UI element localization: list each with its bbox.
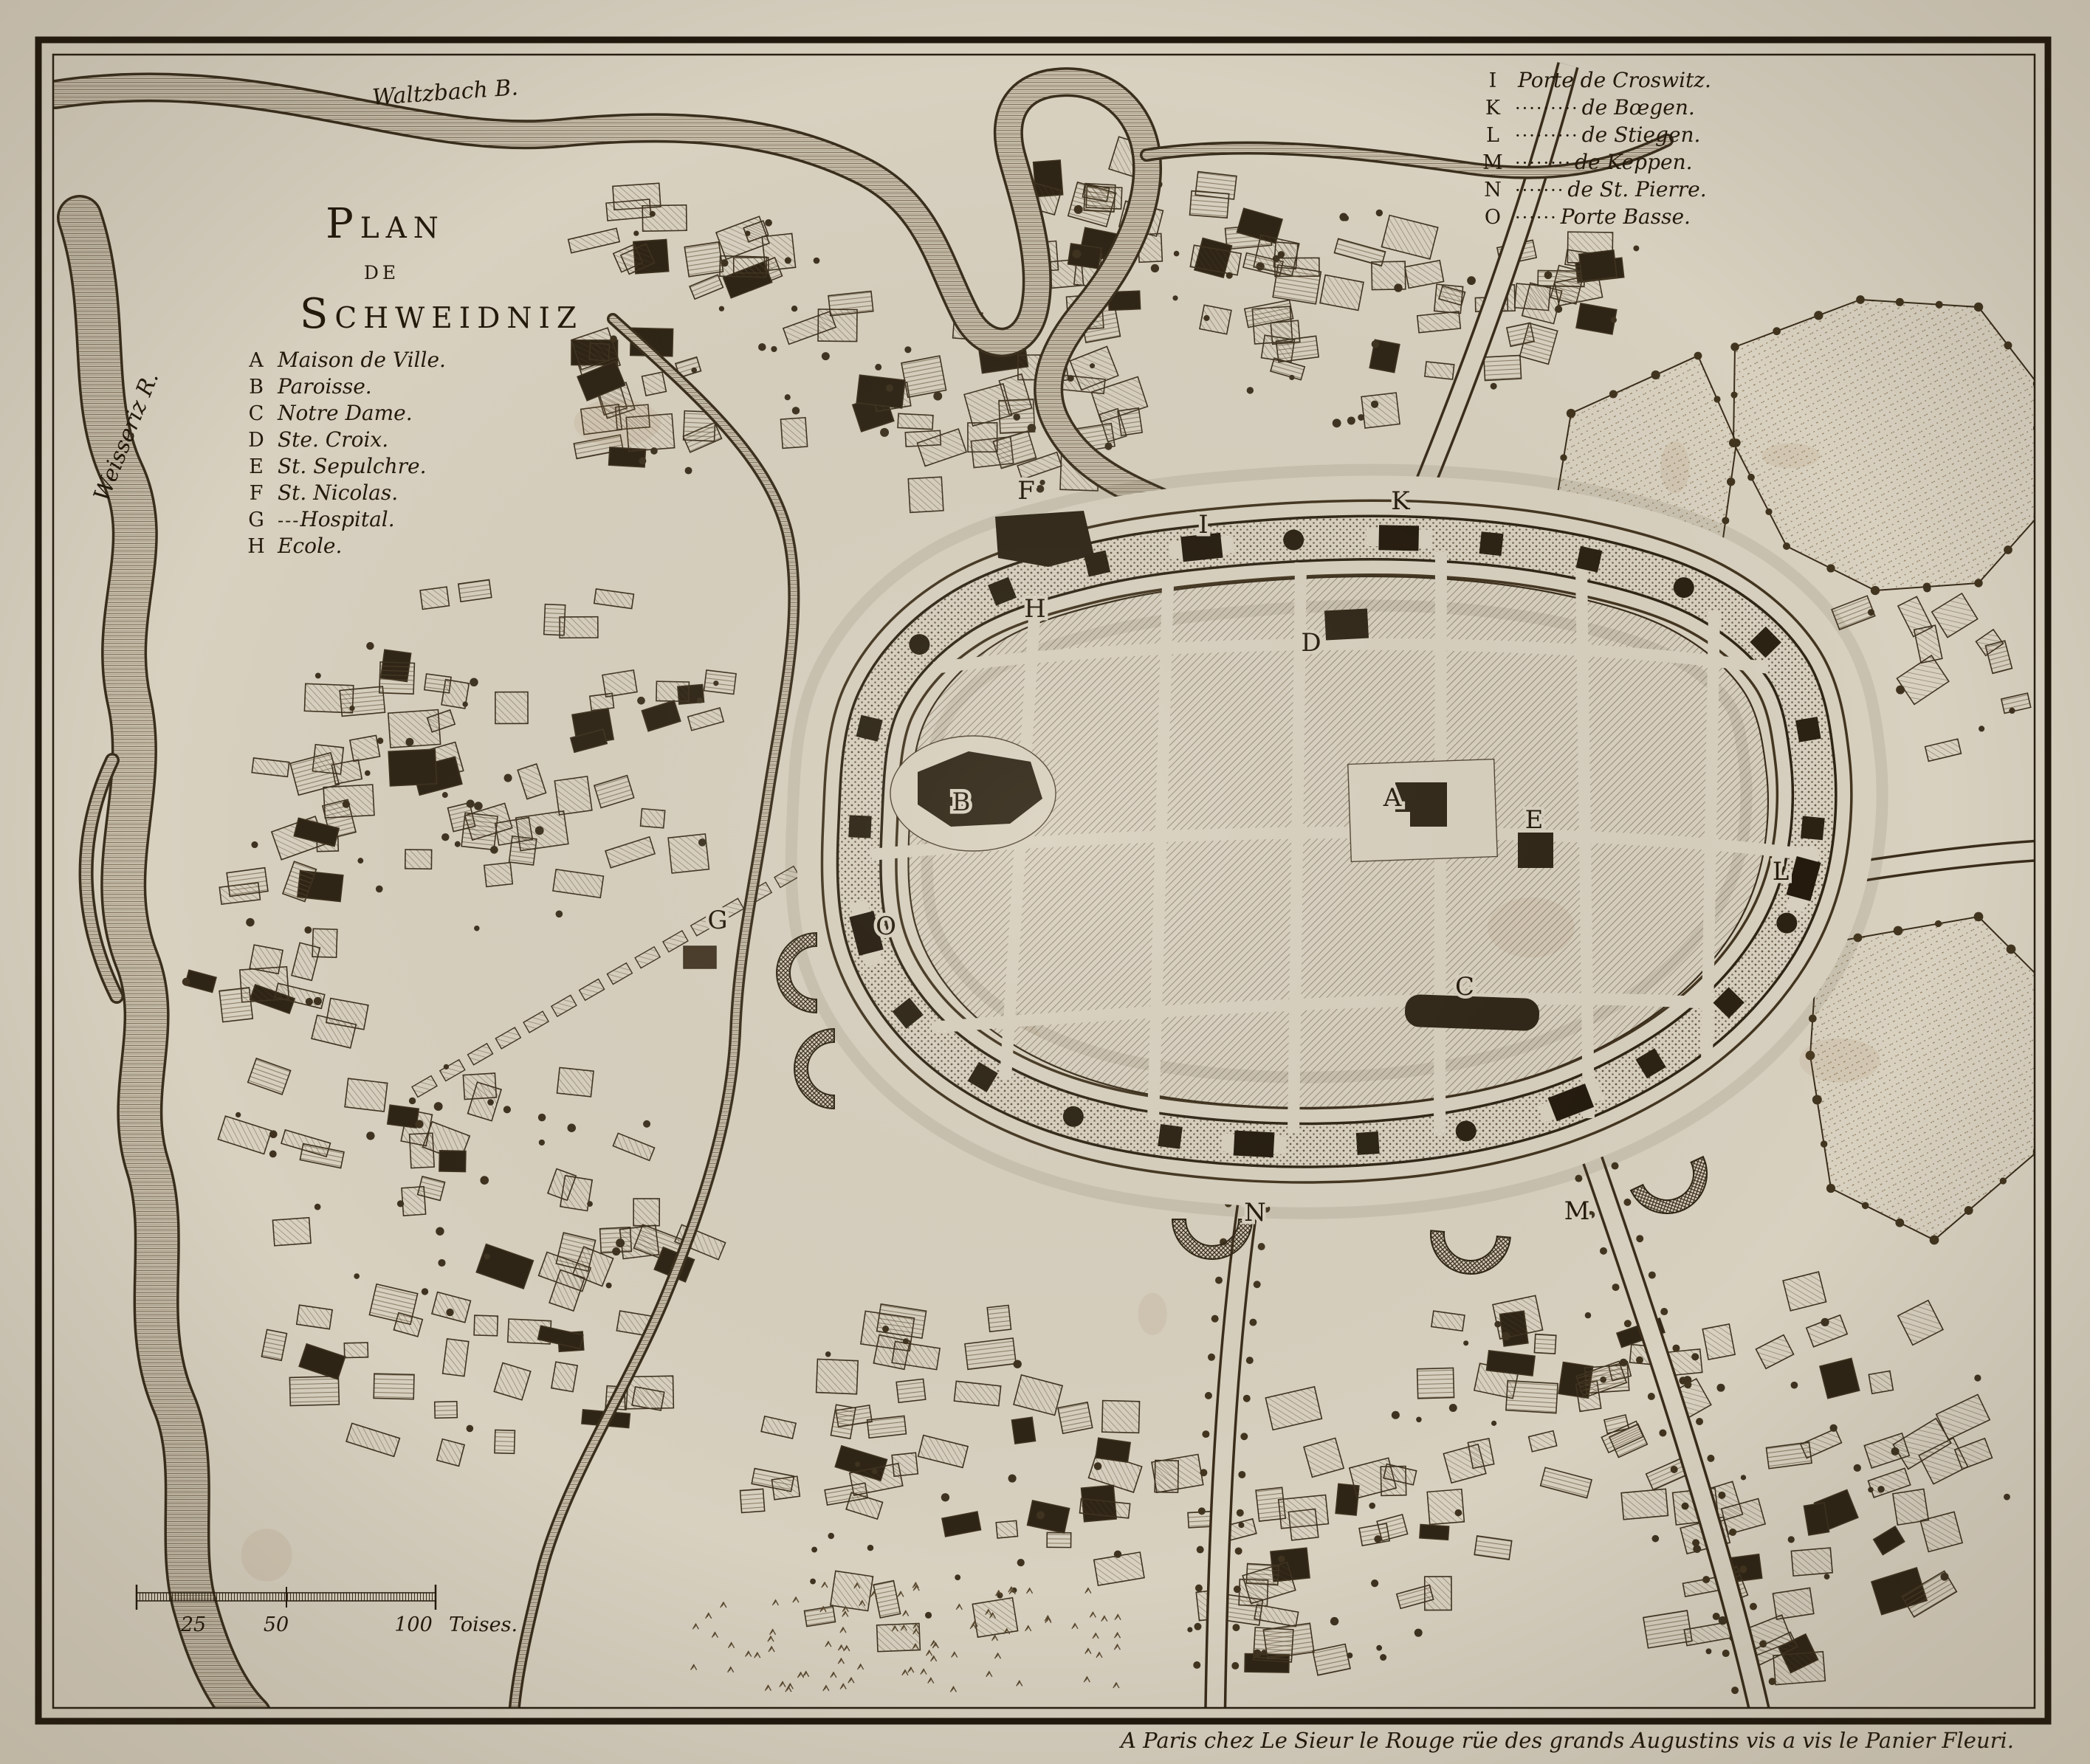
tree-icon: [721, 259, 728, 266]
tree-icon: [1975, 579, 1981, 586]
tree-icon: [785, 394, 791, 400]
suburb-block: [1011, 1417, 1035, 1444]
tree-icon: [1896, 298, 1904, 306]
suburb-block: [1621, 1489, 1668, 1519]
suburb-block: [1506, 1381, 1558, 1413]
tree-icon: [810, 1579, 816, 1585]
tree-icon: [1254, 1281, 1261, 1288]
tree-icon: [867, 1545, 874, 1551]
tree-icon: [1376, 1645, 1382, 1651]
tree-icon: [697, 697, 703, 703]
tree-icon: [1151, 264, 1159, 272]
tree-icon: [503, 1106, 511, 1113]
tree-icon: [1278, 251, 1285, 258]
tree-icon: [1854, 1464, 1861, 1472]
suburb-block: [557, 1067, 594, 1096]
tree-icon: [376, 886, 383, 893]
tree-icon: [434, 1102, 443, 1111]
tree-icon: [1671, 1466, 1678, 1473]
tree-icon: [1964, 1206, 1973, 1215]
st-sepulchre-building: [1518, 833, 1553, 868]
tree-icon: [1333, 418, 1341, 427]
tree-icon: [538, 1114, 546, 1121]
suburb-block: [1893, 1489, 1928, 1525]
suburb-block: [996, 1520, 1017, 1538]
tree-icon: [2000, 1177, 2007, 1184]
tree-icon: [306, 998, 313, 1005]
tree-icon: [1237, 1509, 1244, 1517]
suburb-block: [908, 477, 943, 512]
wall-tower: [1776, 913, 1797, 934]
suburb-block: [1474, 1536, 1512, 1560]
tree-icon: [1660, 1308, 1668, 1315]
wall-tower: [1063, 1106, 1084, 1127]
tree-icon: [872, 1469, 878, 1475]
tree-icon: [903, 1338, 909, 1344]
tree-icon: [1636, 1235, 1643, 1242]
tree-icon: [1008, 1475, 1017, 1483]
tree-icon: [1258, 1243, 1265, 1250]
tree-icon: [771, 346, 777, 352]
legend-label: Notre Dame.: [277, 401, 413, 425]
tree-icon: [1609, 390, 1618, 399]
tree-icon: [343, 800, 350, 807]
suburb-block: [304, 683, 353, 712]
street: [1581, 567, 1589, 1118]
suburb-block: [1507, 323, 1534, 346]
tree-icon: [1013, 1360, 1021, 1368]
suburb-block: [1820, 1358, 1860, 1398]
tree-icon: [366, 642, 374, 650]
suburb-block: [1361, 393, 1400, 428]
tree-icon: [1692, 1539, 1699, 1546]
tree-icon: [633, 231, 639, 236]
tree-icon: [1718, 1492, 1725, 1499]
legend-label: ---Hospital.: [278, 507, 395, 531]
legend-label: Paroisse.: [277, 374, 372, 399]
bastion: [1479, 531, 1504, 556]
tree-icon: [474, 802, 483, 810]
wall-tower: [909, 634, 929, 655]
tree-icon: [1544, 271, 1553, 279]
tree-icon: [1707, 1455, 1714, 1462]
suburb-block: [560, 617, 598, 638]
tree-icon: [1074, 205, 1083, 214]
tree-icon: [1394, 283, 1402, 292]
tree-icon: [315, 672, 321, 678]
foxing-spot: [1799, 1038, 1880, 1083]
tree-icon: [405, 738, 413, 746]
tree-icon: [490, 846, 498, 854]
tree-icon: [1783, 542, 1790, 550]
suburb-block: [1425, 362, 1454, 379]
tree-icon: [1567, 409, 1575, 418]
suburb-block: [901, 356, 946, 397]
suburb-block: [484, 863, 512, 887]
tree-icon: [1187, 1627, 1192, 1632]
tree-icon: [785, 257, 791, 263]
tree-icon: [1935, 920, 1942, 927]
suburb-block: [474, 1315, 498, 1336]
tree-icon: [1857, 296, 1864, 303]
tree-icon: [1691, 1353, 1699, 1360]
tree-icon: [1773, 327, 1781, 335]
tree-icon: [765, 219, 772, 227]
tree-icon: [1730, 391, 1737, 398]
tree-icon: [875, 364, 881, 371]
suburb-block: [443, 1339, 469, 1377]
city-marker-I: I: [1198, 510, 1208, 540]
tree-icon: [1371, 401, 1378, 408]
legend-label: ·········de Stiegen.: [1515, 123, 1700, 147]
suburb-block: [458, 579, 492, 602]
suburb-block: [831, 1571, 873, 1610]
tree-icon: [955, 1574, 960, 1580]
suburb-block: [1804, 1503, 1829, 1535]
legend-key: B: [249, 376, 264, 399]
tree-icon: [1791, 1382, 1798, 1389]
tree-icon: [811, 1547, 817, 1553]
tree-icon: [567, 1123, 576, 1132]
tree-icon: [1702, 1576, 1710, 1583]
tree-icon: [1238, 1522, 1244, 1528]
tree-icon: [1347, 1653, 1352, 1658]
suburb-block: [1427, 1489, 1464, 1525]
tree-icon: [1094, 1462, 1102, 1470]
tree-icon: [1931, 1236, 1938, 1244]
suburb-block: [424, 674, 451, 693]
tree-icon: [1246, 1357, 1254, 1364]
tree-icon: [1343, 215, 1349, 221]
bastion: [1576, 546, 1603, 573]
suburb-block: [1288, 1509, 1318, 1540]
tree-icon: [1633, 245, 1639, 251]
suburb-block: [954, 1381, 1000, 1405]
suburb-block: [905, 430, 941, 447]
suburb-block: [345, 1078, 388, 1112]
tree-icon: [1243, 1395, 1251, 1402]
tree-icon: [791, 306, 797, 311]
tree-icon: [1202, 1430, 1209, 1438]
legend-key: D: [248, 429, 264, 452]
ste-croix-building: [1324, 609, 1369, 641]
tree-icon: [1975, 913, 1983, 921]
suburb-block: [1047, 1532, 1071, 1547]
publisher-imprint: A Paris chez Le Sieur le Rouge rüe des g…: [1118, 1728, 2014, 1753]
foxing-spot: [1761, 443, 1820, 468]
tree-icon: [436, 1227, 444, 1236]
tree-icon: [1347, 416, 1355, 424]
legend-key: E: [249, 455, 264, 478]
tree-icon: [1215, 1277, 1223, 1284]
tree-icon: [904, 346, 911, 353]
tree-icon: [616, 1238, 625, 1247]
suburb-block: [1084, 184, 1116, 213]
tree-icon: [1114, 1551, 1121, 1558]
tree-icon: [1722, 517, 1729, 524]
tree-icon: [1894, 926, 1903, 936]
suburb-block: [410, 1133, 435, 1168]
tree-icon: [1830, 1424, 1838, 1432]
tree-icon: [1232, 1624, 1240, 1631]
tree-icon: [354, 1273, 360, 1279]
tree-icon: [1358, 414, 1364, 421]
tree-icon: [1247, 387, 1254, 393]
map-title-line2: de: [364, 255, 399, 286]
suburb-block: [227, 868, 268, 897]
tree-icon: [1197, 1546, 1204, 1554]
tree-icon: [455, 841, 461, 847]
legend-label: ······Porte Basse.: [1515, 204, 1691, 229]
tree-icon: [1104, 443, 1112, 450]
tree-icon: [182, 978, 190, 986]
tree-icon: [1253, 1650, 1261, 1658]
tree-icon: [745, 231, 750, 236]
foxing-spot: [1660, 441, 1690, 494]
suburb-block: [602, 670, 637, 697]
tree-icon: [610, 335, 616, 342]
tree-icon: [1205, 1392, 1212, 1399]
suburb-block: [1702, 1324, 1735, 1360]
tree-icon: [941, 1493, 949, 1501]
tree-icon: [251, 841, 258, 848]
suburb-block: [898, 413, 933, 429]
legend-label: Porte de Croswitz.: [1517, 68, 1711, 92]
map-title-line3: Schweidniz: [300, 290, 583, 338]
tree-icon: [1682, 1503, 1689, 1510]
tree-icon: [1716, 1384, 1725, 1392]
suburb-block: [1579, 250, 1617, 281]
bastion: [1795, 717, 1821, 743]
foxing-spot: [574, 399, 661, 447]
suburb-block: [1102, 1401, 1140, 1433]
tree-icon: [1940, 1573, 1948, 1581]
scale-unit: Toises.: [449, 1613, 518, 1636]
tree-icon: [409, 1098, 416, 1104]
tree-icon: [1491, 1421, 1496, 1426]
tree-icon: [1017, 1559, 1025, 1566]
town-hall-notch: [1395, 812, 1410, 827]
tree-icon: [1494, 1321, 1501, 1328]
tree-icon: [814, 258, 820, 264]
tree-icon: [1826, 1184, 1835, 1193]
tree-icon: [713, 681, 718, 686]
suburb-block: [495, 692, 528, 724]
suburb-block: [1425, 1577, 1451, 1610]
tree-icon: [1376, 210, 1383, 216]
tree-icon: [1208, 1354, 1215, 1361]
tree-icon: [480, 1176, 489, 1185]
tree-icon: [1868, 1487, 1874, 1493]
tree-icon: [314, 1204, 321, 1210]
suburb-block: [740, 1489, 765, 1512]
tree-icon: [2004, 545, 2012, 554]
tree-icon: [1090, 363, 1095, 368]
tree-icon: [933, 392, 942, 401]
suburb-block: [405, 850, 432, 869]
wall-tower: [1456, 1120, 1477, 1141]
tree-icon: [1555, 306, 1562, 313]
suburb-block: [1190, 191, 1229, 218]
tree-icon: [650, 447, 658, 455]
tree-icon: [535, 826, 544, 835]
tree-icon: [377, 737, 384, 744]
tree-icon: [2004, 342, 2012, 350]
tree-icon: [1684, 1381, 1691, 1388]
tree-icon: [1769, 1678, 1776, 1685]
legend-key: L: [1486, 124, 1499, 147]
city-marker-F: F: [1017, 476, 1035, 506]
suburb-block: [1773, 1652, 1825, 1685]
tree-icon: [422, 1288, 428, 1295]
tree-icon: [467, 799, 475, 807]
tree-icon: [1013, 413, 1020, 421]
city-marker-C: C: [1455, 972, 1474, 1002]
tree-icon: [1195, 1585, 1203, 1592]
bastion: [1356, 1131, 1380, 1155]
tree-icon: [1414, 1629, 1423, 1637]
city-marker-E: E: [1525, 805, 1544, 835]
foxing-spot: [241, 1529, 292, 1581]
tree-icon: [1659, 1429, 1666, 1436]
suburb-block: [379, 662, 415, 694]
city-gate: [1234, 1131, 1275, 1158]
tree-icon: [1037, 485, 1045, 493]
tree-icon: [606, 1283, 612, 1289]
city-marker-A: A: [1383, 783, 1402, 813]
tree-icon: [882, 1326, 889, 1332]
legend-label: St. Nicolas.: [278, 480, 398, 505]
tree-icon: [556, 911, 563, 918]
tree-icon: [1814, 311, 1823, 320]
tree-icon: [2009, 708, 2015, 714]
tree-icon: [792, 407, 800, 414]
tree-icon: [1729, 1529, 1736, 1536]
tree-icon: [269, 1151, 277, 1158]
tree-icon: [438, 1259, 445, 1267]
tree-icon: [1449, 1404, 1457, 1412]
suburb-block: [704, 670, 736, 695]
tree-icon: [442, 792, 448, 798]
tree-icon: [1371, 1579, 1378, 1587]
street: [1707, 611, 1714, 1061]
tree-icon: [1380, 1654, 1386, 1661]
city-marker-O: O: [876, 912, 896, 941]
tree-icon: [365, 771, 371, 776]
tree-icon: [1824, 1574, 1830, 1579]
tree-icon: [1211, 1315, 1219, 1323]
tree-icon: [314, 997, 322, 1005]
tree-icon: [1600, 1247, 1607, 1255]
tree-icon: [1416, 1417, 1422, 1423]
suburb-block: [272, 1218, 311, 1246]
legend-key: F: [250, 482, 264, 505]
tree-icon: [612, 1247, 620, 1255]
legend-label: ·······de St. Pierre.: [1515, 177, 1707, 201]
tree-icon: [1463, 1340, 1468, 1346]
tree-icon: [1235, 1547, 1242, 1554]
tree-icon: [691, 368, 697, 373]
tree-icon: [639, 457, 646, 464]
tree-icon: [1979, 726, 1984, 731]
suburb-block: [828, 292, 873, 316]
legend-label: ········de Keppen.: [1515, 150, 1693, 174]
suburb-block: [219, 988, 252, 1022]
tree-icon: [1868, 609, 1874, 616]
city-marker-G: G: [707, 906, 727, 935]
suburb-block: [633, 1199, 659, 1226]
tree-icon: [1372, 340, 1380, 348]
map-title-line1: Plan: [326, 200, 445, 248]
tree-icon: [1936, 301, 1943, 309]
suburb-block: [554, 776, 592, 815]
tree-icon: [828, 1533, 834, 1540]
bastion: [848, 815, 871, 838]
tree-icon: [1231, 1662, 1239, 1670]
tree-icon: [357, 858, 363, 864]
city-marker-B: B: [952, 788, 971, 817]
tree-icon: [825, 1351, 831, 1357]
tree-icon: [1278, 1555, 1285, 1562]
suburb-block: [323, 785, 374, 818]
legend-key: O: [1485, 206, 1501, 229]
suburb-block: [780, 418, 807, 449]
suburb-block: [1276, 336, 1319, 362]
suburb-block: [420, 587, 449, 609]
tree-icon: [1722, 1650, 1730, 1657]
map-sheet: Plan de Schweidniz A Maison de Ville. B …: [0, 0, 2090, 1764]
tree-icon: [1871, 587, 1878, 593]
tree-icon: [474, 926, 479, 931]
tree-icon: [1330, 1617, 1338, 1625]
tree-icon: [1750, 1603, 1757, 1610]
tree-icon: [1747, 474, 1755, 481]
tree-icon: [698, 838, 706, 846]
legend-label: Ecole.: [277, 534, 342, 558]
suburb-block: [968, 423, 997, 452]
tree-icon: [1672, 1345, 1680, 1352]
tree-icon: [587, 1201, 593, 1207]
map-canvas: Plan de Schweidniz A Maison de Ville. B …: [0, 0, 2090, 1764]
tree-icon: [1455, 1509, 1462, 1517]
tree-icon: [1696, 1418, 1703, 1425]
legend-key: N: [1484, 179, 1502, 201]
suburb-block: [642, 372, 667, 396]
suburb-block: [1534, 1334, 1556, 1354]
suburb-block: [350, 735, 380, 761]
hospital-building: [684, 946, 716, 968]
tree-icon: [2004, 1494, 2010, 1501]
suburb-block: [544, 604, 566, 635]
tree-icon: [1172, 295, 1178, 300]
suburb-block: [1420, 1525, 1449, 1540]
foxing-spot: [1138, 1293, 1167, 1335]
city-marker-N: N: [1244, 1198, 1266, 1227]
suburb-block: [1417, 1368, 1454, 1398]
tree-icon: [1812, 1095, 1822, 1105]
wall-tower: [1674, 577, 1694, 598]
suburb-block: [620, 1225, 659, 1258]
tree-icon: [855, 1461, 860, 1467]
suburb-block: [1515, 283, 1551, 310]
suburb-block: [1869, 1371, 1893, 1393]
tree-icon: [462, 701, 467, 706]
legend-label: Ste. Croix.: [278, 427, 388, 452]
tree-icon: [1369, 1503, 1375, 1509]
tree-icon: [1891, 1447, 1900, 1455]
tree-icon: [1731, 1687, 1739, 1694]
tree-icon: [269, 1130, 278, 1138]
